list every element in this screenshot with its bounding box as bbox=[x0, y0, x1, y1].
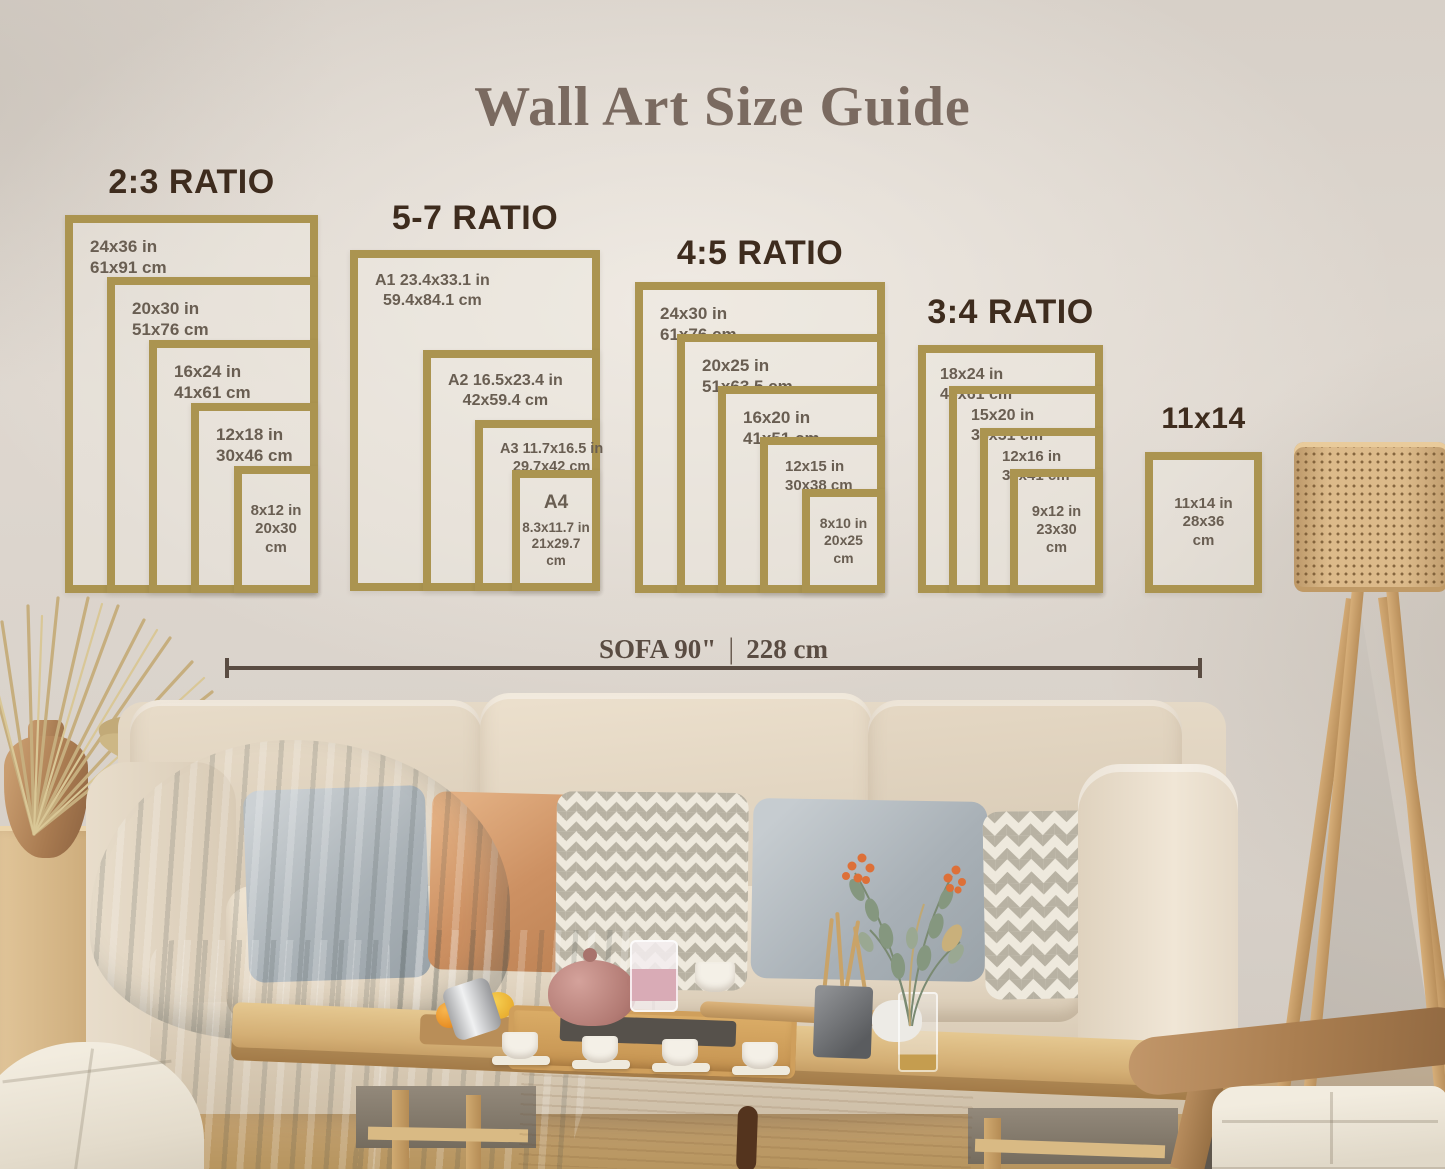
measure-label: SOFA 90" | 228 cm bbox=[599, 632, 828, 666]
measure-inches: SOFA 90" bbox=[599, 634, 716, 665]
rattan-lamp-shade bbox=[1294, 442, 1445, 592]
teacup bbox=[502, 1032, 538, 1059]
teacup bbox=[662, 1039, 698, 1066]
frame-9x12: 9x12 in23x30cm bbox=[1010, 469, 1103, 593]
ratio-heading-4-5: 4:5 RATIO bbox=[635, 234, 885, 273]
ratio-heading-11x14: 11x14 bbox=[1145, 402, 1262, 436]
eucalyptus-plant bbox=[800, 818, 1020, 1028]
glass-jar bbox=[630, 940, 678, 1012]
frame-size-label: A4 8.3x11.7 in 21x29.7 cm bbox=[522, 491, 590, 570]
measure-divider: | bbox=[728, 632, 734, 666]
frame-size-label: 8x12 in20x30cm bbox=[251, 502, 302, 558]
table-shelf-left bbox=[368, 1127, 528, 1143]
frame-size-label: 11x14 in28x36cm bbox=[1174, 495, 1232, 551]
frame-size-label: 9x12 in23x30cm bbox=[1032, 504, 1081, 558]
teacup bbox=[582, 1036, 618, 1063]
ratio-heading-3-4: 3:4 RATIO bbox=[918, 293, 1103, 332]
teapot bbox=[548, 960, 636, 1026]
frame-size-label: 12x18 in30x46 cm bbox=[216, 424, 293, 466]
teacup bbox=[742, 1042, 778, 1069]
wall-art-size-guide: Wall Art Size Guide 2:3 RATIO 24x36 in61… bbox=[0, 0, 1445, 1169]
sofa-measure: SOFA 90" | 228 cm bbox=[225, 638, 1202, 682]
frame-size-label: A2 16.5x23.4 in42x59.4 cm bbox=[448, 371, 563, 411]
chair-cushion bbox=[1212, 1086, 1445, 1169]
frame-size-label: 16x24 in41x61 cm bbox=[174, 361, 251, 403]
ratio-heading-2-3: 2:3 RATIO bbox=[65, 163, 318, 202]
frame-8x12: 8x12 in20x30cm bbox=[234, 466, 318, 593]
frame-a4: A4 8.3x11.7 in 21x29.7 cm bbox=[512, 470, 600, 591]
measure-cm: 228 cm bbox=[746, 634, 828, 665]
teacup bbox=[695, 962, 735, 992]
frame-size-label: 8x10 in20x25cm bbox=[820, 515, 867, 567]
frame-size-label: 20x30 in51x76 cm bbox=[132, 298, 209, 340]
measure-line bbox=[225, 666, 1202, 670]
page-title: Wall Art Size Guide bbox=[0, 75, 1445, 139]
frame-11x14: 11x14 in28x36cm bbox=[1145, 452, 1262, 593]
frame-size-label: 24x36 in61x91 cm bbox=[90, 236, 167, 278]
frame-8x10: 8x10 in20x25cm bbox=[802, 489, 885, 593]
teapot-lid bbox=[583, 948, 597, 962]
ratio-heading-5-7: 5-7 RATIO bbox=[350, 199, 600, 238]
frame-size-label: A1 23.4x33.1 in59.4x84.1 cm bbox=[375, 271, 490, 311]
cabinet-handle bbox=[736, 1106, 758, 1169]
